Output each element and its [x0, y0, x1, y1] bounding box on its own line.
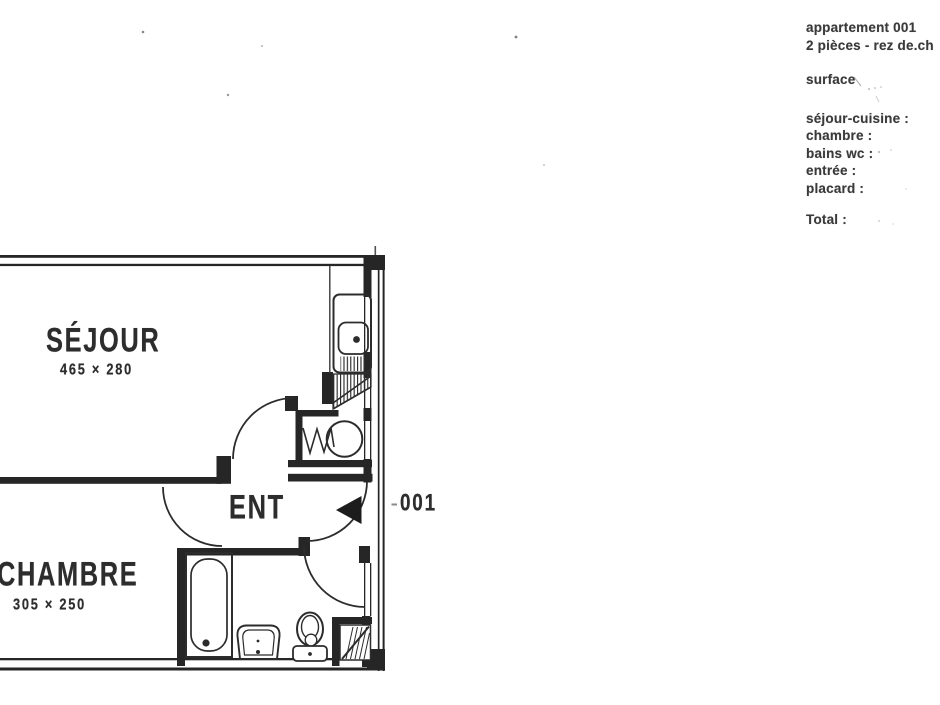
toilet: [293, 613, 327, 662]
surface-items: séjour-cuisine : chambre : bains wc : en…: [806, 110, 909, 197]
bathtub: [186, 553, 232, 657]
washbasin: [237, 626, 279, 660]
surface-item-placard: placard :: [806, 180, 909, 197]
surface-item-sejour-cuisine: séjour-cuisine :: [806, 110, 909, 127]
total-label: Total :: [806, 213, 847, 227]
kitchen-sink: [339, 323, 369, 355]
room-dimensions-sejour: 465 × 280: [60, 362, 133, 379]
scanned-floor-plan-page: SÉJOUR 465 × 280 CHAMBRE 305 × 250 ENT 0…: [0, 0, 940, 705]
drainer: [341, 357, 368, 372]
surface-label: surface: [806, 73, 855, 87]
entrance-arrow-icon: [336, 496, 397, 524]
surface-item-bains-wc: bains wc :: [806, 145, 909, 162]
scan-noise: [142, 31, 907, 225]
surface-item-entree: entrée :: [806, 162, 909, 179]
unit-number-label: 001: [400, 490, 437, 518]
room-label-chambre: CHAMBRE: [0, 554, 138, 594]
apartment-title: appartement 001: [806, 21, 916, 35]
room-label-sejour: SÉJOUR: [46, 320, 160, 360]
placard-hatch: [340, 625, 371, 660]
room-label-entree: ENT: [229, 487, 285, 527]
apartment-subtitle: 2 pièces - rez de.ch: [806, 39, 934, 53]
surface-item-chambre: chambre :: [806, 127, 909, 144]
sejour-door-arc: [233, 398, 294, 459]
room-dimensions-chambre: 305 × 250: [13, 597, 86, 614]
chambre-door-arc: [163, 487, 222, 546]
bathroom-door-arc: [304, 546, 365, 607]
